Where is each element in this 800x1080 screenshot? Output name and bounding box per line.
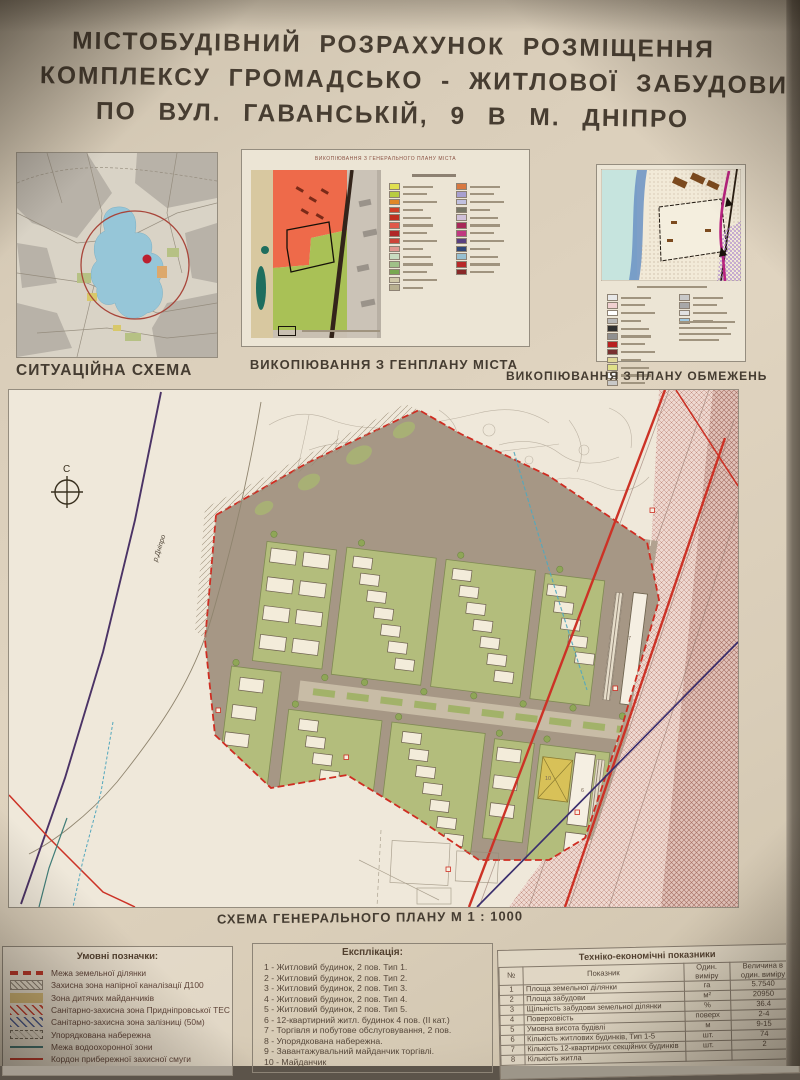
legend-item: Санітарно-захисна зона Придніпровської Т… [3,1004,232,1016]
map-legend-swatch [389,277,400,284]
legend-swatch-hatch-gray [10,980,43,990]
map-legend-entry [456,215,526,220]
plot-outline-constraints [659,199,727,261]
legend-item: Кордон прибережної захисної смуги [3,1053,232,1065]
poster: МІСТОБУДІВНИЙ РОЗРАХУНОК РОЗМІЩЕННЯ КОМП… [0,0,786,1066]
tech-cell-num: 1 [499,985,523,996]
map-legend-entry [456,231,526,236]
map-legend-entry [389,246,451,251]
map-legend-swatch [456,269,467,276]
master-plan-caption: СХЕМА ГЕНЕРАЛЬНОГО ПЛАНУ М 1 : 1000 [120,907,620,927]
explication-item: 9 - Завантажувальний майданчик торгівлі. [253,1046,492,1057]
legend-item: Санітарно-захисна зона залізниці (50м) [3,1016,232,1028]
explication-box: Експлікація: 1 - Житловий будинок, 2 пов… [252,943,493,1073]
wall-background [786,0,800,1066]
map-legend-swatch [456,214,467,221]
map-legend-entry [389,285,451,290]
map-legend-swatch [389,222,400,229]
map-legend-entry [456,200,526,205]
legend-items: Межа земельної ділянкиЗахисна зона напір… [3,967,232,1065]
legend-label: Межа водоохоронної зони [51,1042,153,1052]
tech-cell-num: 4 [500,1015,524,1026]
map-legend-swatch [389,238,400,245]
tech-cell-num: 3 [500,1005,524,1016]
map-legend-entry [389,207,451,212]
explication-item: 8 - Упорядкована набережна. [253,1036,492,1047]
map-legend-text-bar [470,256,498,258]
explication-item: 7 - Торгівля и побутове обслуговування, … [253,1025,492,1036]
map-legend-swatch [389,183,400,190]
genplan-excerpt-panel: ВИКОПІЮВАННЯ З ГЕНЕРАЛЬНОГО ПЛАНУ МІСТА [241,149,530,347]
legend-swatch-hatch-blue [10,1017,43,1027]
map-legend-text-bar [403,248,423,250]
map-legend-entry [456,270,526,275]
legend-swatch-hatch-red [10,1005,43,1015]
map-legend-entry [456,207,526,212]
map-legend-swatch [607,310,618,317]
map-legend-swatch [679,294,690,301]
map-legend-swatch [456,207,467,214]
explication-item: 3 - Житловий будинок, 2 пов. Тип 3. [253,983,492,994]
legend-swatch-dash-box [10,1030,43,1039]
map-legend-text-bar [693,297,723,299]
col-unit: Один. виміру [683,962,730,981]
constraints-text-bar-2 [679,327,727,329]
legend-item: Межа земельної ділянки [3,967,232,979]
map-legend-swatch [456,191,467,198]
map-legend-entry [389,223,451,228]
map-legend-entry [679,295,743,300]
map-legend-text-bar [470,217,498,219]
building-label-7: 7 [628,636,631,642]
map-legend-text-bar [470,263,500,265]
map-legend-text-bar [403,217,431,219]
constraints-caption: ВИКОПІЮВАННЯ З ПЛАНУ ОБМЕЖЕНЬ [506,369,762,383]
constraints-plan-panel [596,164,746,362]
legend-label: Санітарно-захисна зона залізниці (50м) [51,1017,205,1027]
map-legend-text-bar [403,287,423,289]
map-legend-swatch [389,253,400,260]
map-legend-entry [389,200,451,205]
map-legend-text-bar [621,297,651,299]
legend-item: Упорядкована набережна [3,1028,232,1040]
legend-label: Санітарно-захисна зона Придніпровської Т… [51,1005,230,1015]
map-legend-entry [456,262,526,267]
map-legend-swatch [607,302,618,309]
map-legend-text-bar [403,256,431,258]
genplan-caption: ВИКОПІЮВАННЯ З ГЕНПЛАНУ МІСТА [248,357,520,372]
map-legend-text-bar [470,271,494,273]
map-legend-swatch [389,284,400,291]
explication-items: 1 - Житловий будинок, 2 пов. Тип 1.2 - Ж… [253,962,492,1067]
map-legend-entry [456,184,526,189]
tech-cell-unit [685,1050,731,1061]
tech-cell-num: 2 [500,995,524,1006]
map-legend-entry [679,303,743,308]
map-legend-swatch [456,253,467,260]
building-label-10: 10 [545,776,551,782]
legend-item: Зона дитячих майданчиків [3,992,232,1004]
genplan-inner-title: ВИКОПІЮВАННЯ З ГЕНЕРАЛЬНОГО ПЛАНУ МІСТА [242,156,529,162]
map-legend-entry [679,311,743,316]
explication-item: 2 - Житловий будинок, 2 пов. Тип 2. [253,973,492,984]
map-legend-text-bar [470,201,504,203]
map-legend-entry [389,215,451,220]
map-legend-swatch [607,357,618,364]
master-plan-map: С р.Дніпро 7 6 10 [9,390,738,907]
tech-cell-num: 8 [501,1055,525,1066]
map-legend-entry [389,238,451,243]
map-legend-text-bar [470,240,504,242]
map-legend-swatch [389,261,400,268]
map-legend-entry [389,277,451,282]
map-legend-text-bar [621,304,645,306]
genplan-legend-column-2 [456,184,526,275]
map-legend-swatch [456,238,467,245]
genplan-legend-header-bar [412,174,456,177]
legend-swatch-line-red [10,1058,43,1061]
constraints-legend-column-2 [679,295,743,324]
map-legend-entry [389,231,451,236]
map-legend-entry [456,223,526,228]
map-legend-text-bar [403,193,427,195]
map-legend-swatch [456,230,467,237]
master-plan-panel: С р.Дніпро 7 6 10 [8,389,739,908]
map-legend-entry [607,318,673,323]
legend-swatch-dash-red [10,971,43,975]
map-legend-swatch [389,230,400,237]
map-legend-text-bar [403,209,423,211]
genplan-note-swatch [278,326,296,336]
explication-item: 5 - Житловий будинок, 2 пов. Тип 5. [253,1004,492,1015]
legend-swatch-solid-tan [10,993,43,1003]
situation-caption: СИТУАЦІЙНА СХЕМА [16,362,192,380]
map-legend-swatch [456,246,467,253]
map-legend-text-bar [470,186,500,188]
tech-cell-num: 5 [500,1025,524,1036]
map-legend-swatch [607,318,618,325]
map-legend-entry [389,254,451,259]
map-legend-swatch [607,341,618,348]
map-legend-swatch [456,183,467,190]
explication-item: 6 - 12-квартирний житл. будинок 4 пов. (… [253,1015,492,1026]
tech-cell-num: 6 [500,1035,524,1046]
tech-indicators-box: Техніко-економічні показники № Показник … [497,943,800,1080]
map-legend-text-bar [403,240,437,242]
map-legend-swatch [389,246,400,253]
situation-map [17,153,217,357]
legend-label: Зона дитячих майданчиків [51,993,154,1003]
map-legend-swatch [456,261,467,268]
map-legend-text-bar [470,232,494,234]
map-legend-entry [607,342,673,347]
map-legend-text-bar [403,279,437,281]
legend-box: Умовні позначки: Межа земельної ділянкиЗ… [2,946,233,1076]
legend-label: Захисна зона напірної каналізації Д100 [51,980,204,990]
map-legend-swatch [389,199,400,206]
map-legend-entry [456,254,526,259]
map-legend-swatch [607,333,618,340]
legend-item: Межа водоохоронної зони [3,1041,232,1053]
genplan-legend-column-1 [389,184,451,290]
map-legend-text-bar [621,335,651,337]
legend-label: Межа земельної ділянки [51,968,146,978]
col-num: № [499,967,523,986]
map-legend-text-bar [621,320,641,322]
legend-swatch-line-teal [10,1046,43,1048]
tech-table: № Показник Один. виміру Величина в один.… [498,960,798,1066]
map-legend-text-bar [470,224,500,226]
map-legend-entry [389,184,451,189]
map-legend-text-bar [403,186,433,188]
map-legend-swatch [389,191,400,198]
map-legend-entry [607,334,673,339]
map-legend-text-bar [621,343,645,345]
map-legend-swatch [389,214,400,221]
map-legend-swatch [389,207,400,214]
situation-map-panel [16,152,218,358]
map-legend-swatch [679,302,690,309]
map-legend-entry [456,238,526,243]
legend-title: Умовні позначки: [3,951,232,962]
explication-item: 4 - Житловий будинок, 2 пов. Тип 4. [253,994,492,1005]
map-legend-entry [607,357,673,362]
map-legend-text-bar [403,224,433,226]
map-legend-text-bar [470,209,490,211]
constraints-text-bar-4 [679,339,719,341]
map-legend-text-bar [621,359,641,361]
map-legend-entry [456,192,526,197]
compass-label: С [63,464,70,475]
map-legend-text-bar [621,328,649,330]
map-legend-entry [607,295,673,300]
tech-cell-num: 7 [501,1045,525,1056]
map-legend-text-bar [403,232,427,234]
map-legend-swatch [607,294,618,301]
map-legend-entry [607,311,673,316]
map-legend-entry [389,192,451,197]
map-legend-text-bar [693,304,717,306]
building-label-6: 6 [581,788,584,794]
map-legend-text-bar [403,263,433,265]
map-legend-swatch [456,199,467,206]
map-legend-entry [389,262,451,267]
map-legend-text-bar [693,312,727,314]
map-legend-entry [607,303,673,308]
map-legend-text-bar [470,193,494,195]
map-legend-swatch [607,325,618,332]
map-legend-entry [607,349,673,354]
genplan-map [251,170,381,338]
poster-title: МІСТОБУДІВНИЙ РОЗРАХУНОК РОЗМІЩЕННЯ КОМП… [39,23,746,138]
map-legend-text-bar [470,248,490,250]
map-legend-text-bar [403,271,427,273]
map-legend-text-bar [403,201,437,203]
map-legend-entry [389,270,451,275]
constraints-subcaption-bar [637,286,707,288]
map-legend-swatch [389,269,400,276]
constraints-map [601,169,741,281]
legend-label: Кордон прибережної захисної смуги [51,1054,191,1064]
map-legend-swatch [456,222,467,229]
explication-item: 1 - Житловий будинок, 2 пов. Тип 1. [253,962,492,973]
site-location-dot [143,255,152,264]
map-legend-text-bar [621,312,655,314]
constraints-text-bar-1 [679,321,735,323]
map-legend-swatch [679,310,690,317]
explication-title: Експлікація: [253,947,492,958]
map-legend-text-bar [621,351,655,353]
map-legend-swatch [607,349,618,356]
map-legend-entry [607,326,673,331]
constraints-text-bar-3 [679,333,731,335]
map-legend-entry [456,246,526,251]
legend-label: Упорядкована набережна [51,1030,151,1040]
legend-item: Захисна зона напірної каналізації Д100 [3,979,232,991]
genplan-note-bar [302,330,380,332]
